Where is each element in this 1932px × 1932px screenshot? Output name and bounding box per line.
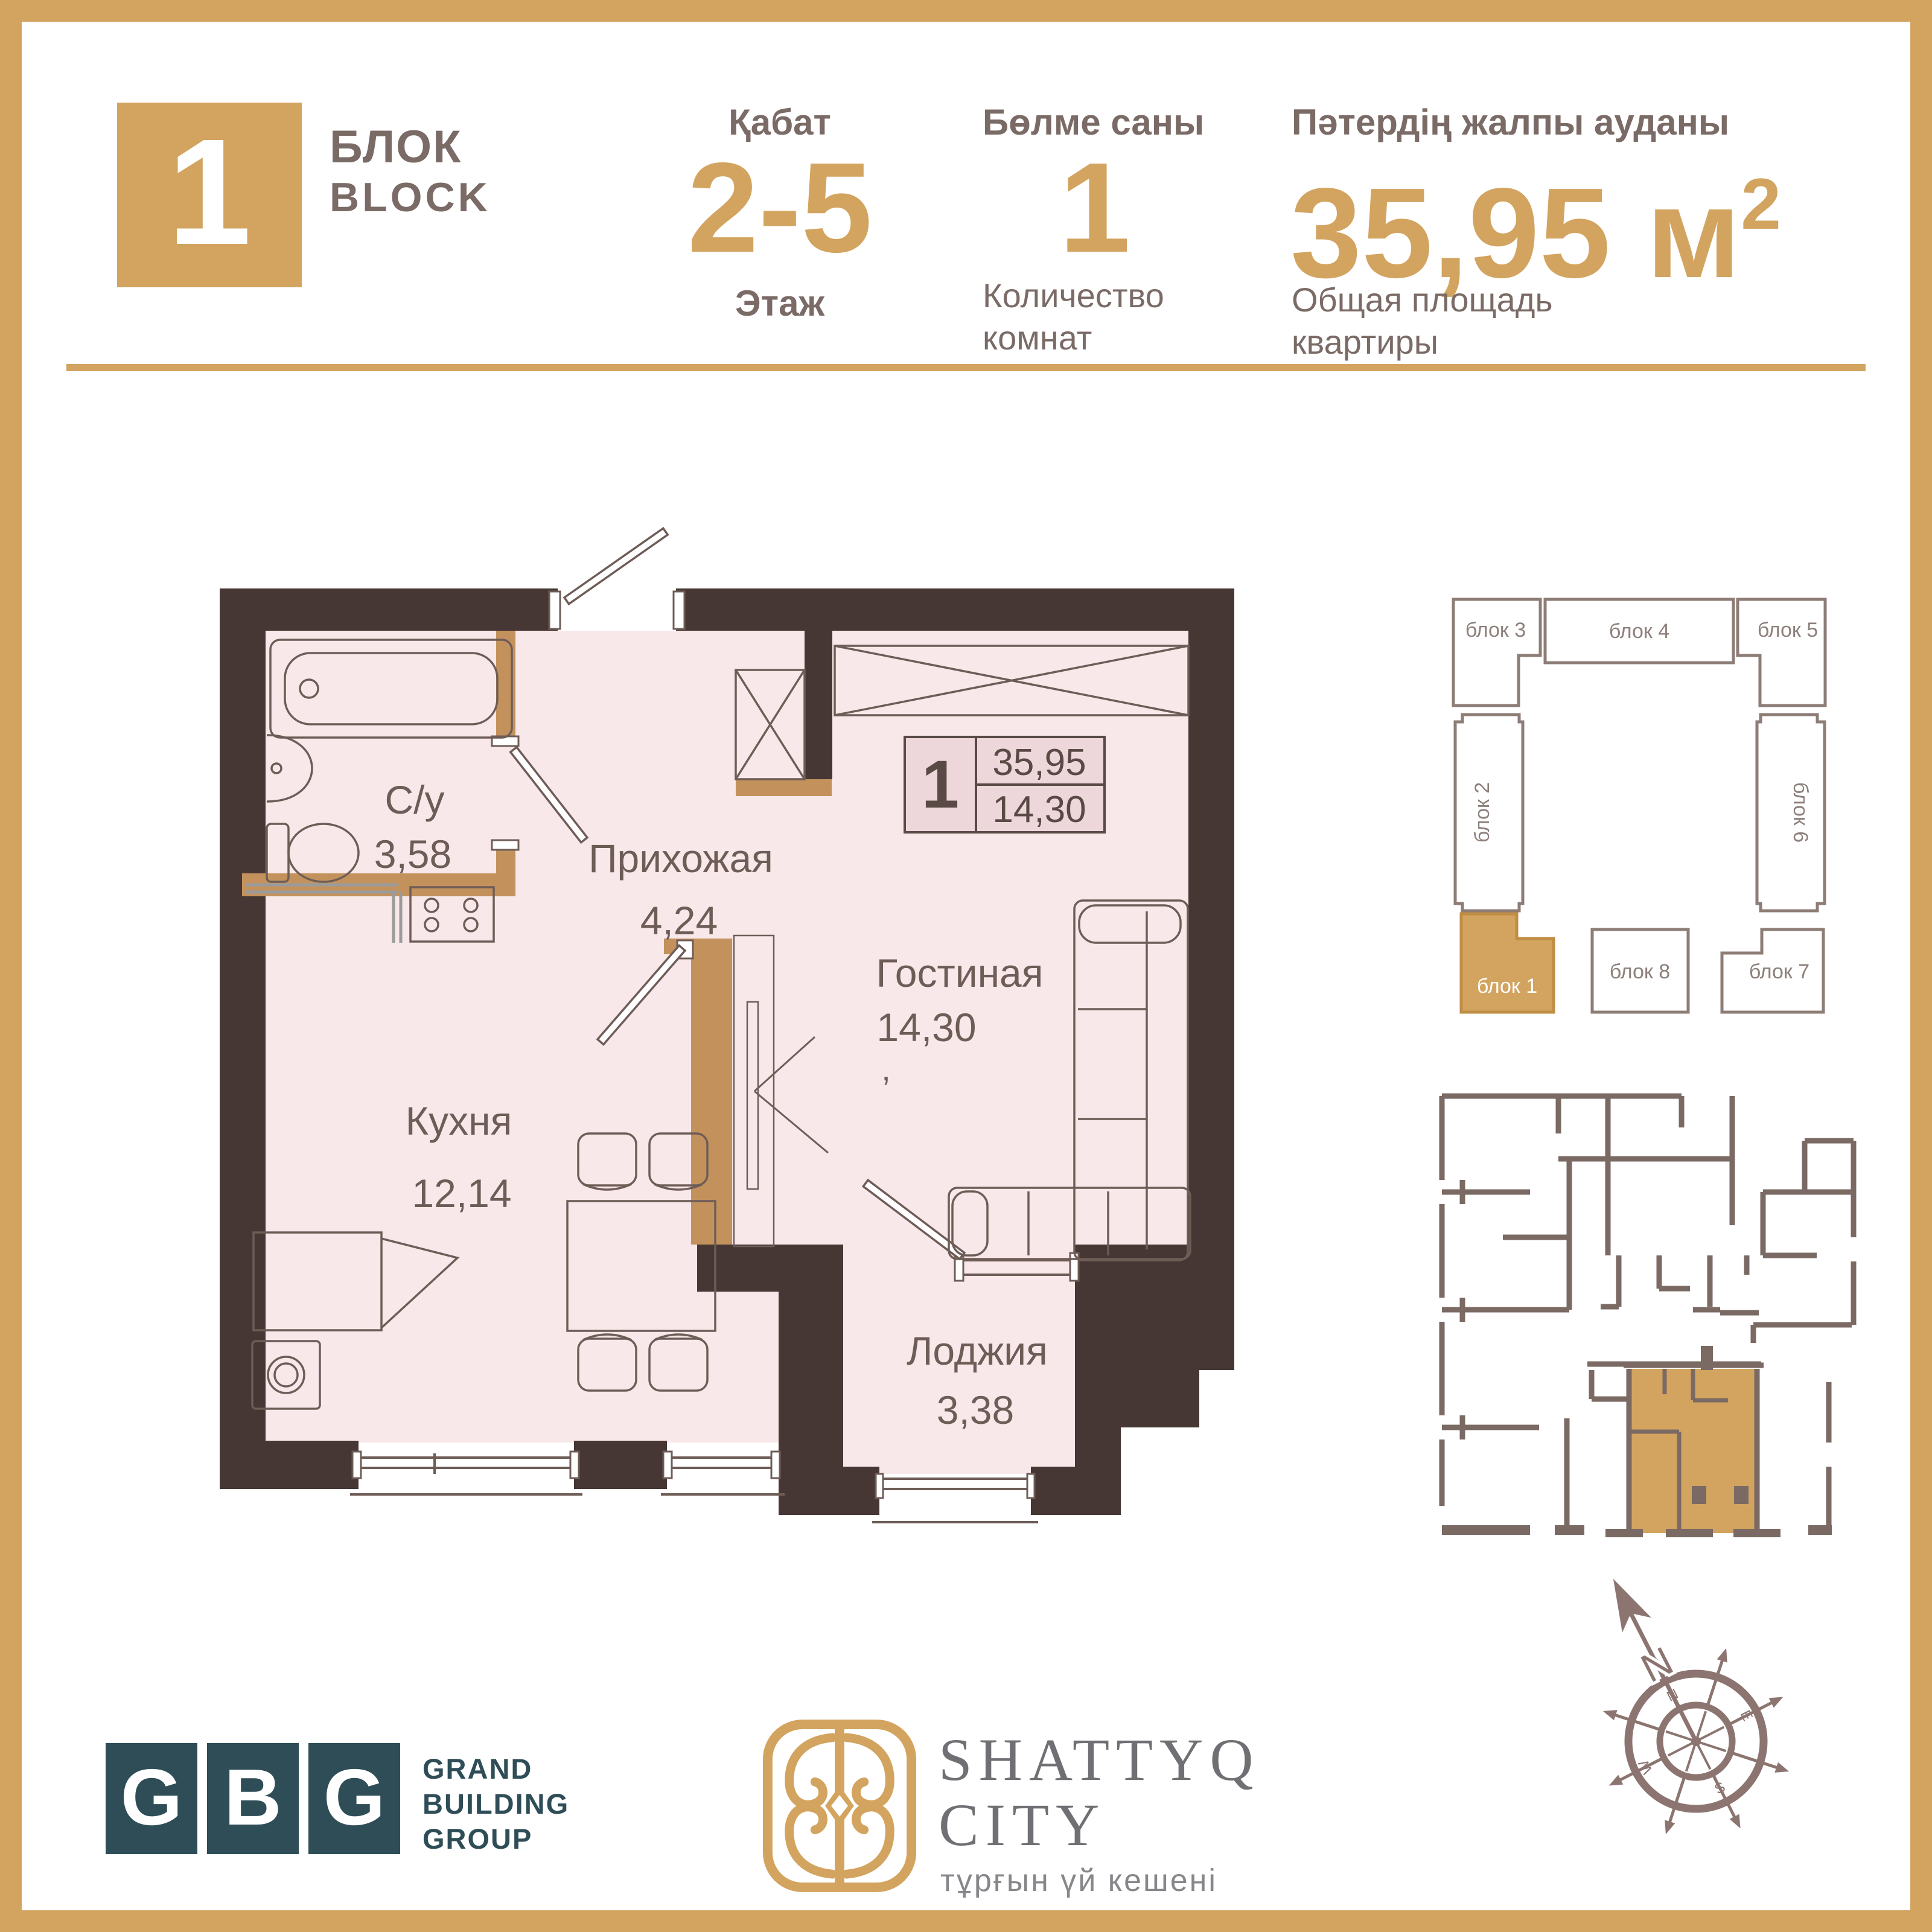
- rooms-value: 1: [1059, 144, 1130, 272]
- room-area: 12,14: [412, 1171, 511, 1216]
- block-word-kk: БЛОК: [330, 121, 462, 173]
- rooms-label-ru: Количество комнат: [983, 275, 1164, 359]
- block-6-label: блок 6: [1789, 782, 1812, 843]
- room-area: 3,38: [937, 1388, 1014, 1432]
- room-name: Лоджия: [907, 1328, 1048, 1373]
- shattyq-tagline: тұрғын үй кешені: [940, 1863, 1217, 1899]
- rooms-label-ru-line1: Количество: [983, 276, 1164, 314]
- room-area: 4,24: [640, 898, 718, 943]
- block-3-label: блок 3: [1465, 619, 1526, 642]
- room-name: С/у: [385, 777, 445, 822]
- room-name: Кухня: [406, 1098, 512, 1143]
- area-label-ru-line2: квартиры: [1292, 323, 1438, 361]
- block-2-label: блок 2: [1471, 782, 1494, 843]
- entry-door-leaf: [564, 528, 668, 604]
- gbg-name-line2: BUILDING: [422, 1788, 569, 1820]
- room-name: Гостиная: [876, 951, 1043, 995]
- block-word-en: BLOCK: [330, 174, 491, 221]
- block-3-shape: [1453, 599, 1540, 706]
- floor-value: 2-5: [634, 144, 926, 272]
- apartment-floor-plan: 1 35,95 14,30 С/у 3,58 Прихожая 4,24 Гос…: [217, 525, 1237, 1551]
- shattyq-title-line2: CITY: [939, 1791, 1106, 1858]
- gbg-logo-square: B: [207, 1743, 299, 1854]
- stray-comma: ,: [881, 1050, 891, 1088]
- block-4-label: блок 4: [1609, 620, 1669, 643]
- shattyq-ornament-logo: [762, 1718, 917, 1894]
- block-number-badge: 1: [117, 103, 302, 287]
- block-8-label: блок 8: [1610, 960, 1670, 983]
- gbg-logo-square: G: [106, 1743, 197, 1854]
- room-area: 3,58: [374, 832, 451, 876]
- area-label-ru-line1: Общая площадь: [1292, 281, 1553, 319]
- info-total-area: 35,95: [992, 742, 1086, 783]
- block-1-label: блок 1: [1477, 975, 1537, 998]
- area-label-kk: Пәтердің жалпы ауданы: [1292, 101, 1729, 143]
- cardinal-n: N: [1664, 1686, 1681, 1705]
- compass-rose: N E S W N: [1563, 1542, 1829, 1892]
- area-value: 35,95 м2: [1290, 140, 1781, 297]
- compass-north-label: N: [1634, 1638, 1680, 1691]
- area-label-ru: Общая площадь квартиры: [1292, 279, 1553, 363]
- gbg-logo-name: GRAND BUILDING GROUP: [422, 1752, 569, 1857]
- shattyq-title: SHATTYQ CITY: [939, 1727, 1260, 1858]
- highlighted-unit: [1605, 1346, 1781, 1533]
- info-living-area: 14,30: [992, 789, 1086, 831]
- area-sup: 2: [1741, 164, 1781, 244]
- block-5-shape: [1738, 599, 1825, 706]
- info-rooms: 1: [922, 747, 959, 822]
- cardinal-e: E: [1737, 1707, 1756, 1724]
- room-area: 14,30: [876, 1005, 976, 1050]
- plan-info-box: 1 35,95 14,30: [905, 737, 1105, 832]
- shattyq-title-line1: SHATTYQ: [939, 1726, 1260, 1793]
- floor-overview-plan: [1406, 1056, 1871, 1545]
- brochure-page: 1 БЛОК BLOCK Қабат 2-5 Этаж Бөлме саны 1…: [0, 0, 1932, 1932]
- cardinal-s: S: [1712, 1779, 1728, 1797]
- gbg-logo-square: G: [308, 1743, 400, 1854]
- gbg-name-line1: GRAND: [422, 1753, 532, 1785]
- north-arrow: [1599, 1572, 1651, 1633]
- gbg-name-line3: GROUP: [422, 1823, 532, 1855]
- header-divider: [66, 364, 1866, 371]
- floor-label-ru: Этаж: [664, 282, 896, 324]
- area-unit: м: [1646, 161, 1741, 304]
- block-5-label: блок 5: [1758, 619, 1818, 642]
- room-name: Прихожая: [588, 836, 773, 881]
- block-diagram: блок 3 блок 4 блок 5 блок 2 блок 6 блок …: [1443, 595, 1865, 1053]
- rooms-label-ru-line2: комнат: [983, 319, 1092, 357]
- block-7-label: блок 7: [1749, 960, 1809, 983]
